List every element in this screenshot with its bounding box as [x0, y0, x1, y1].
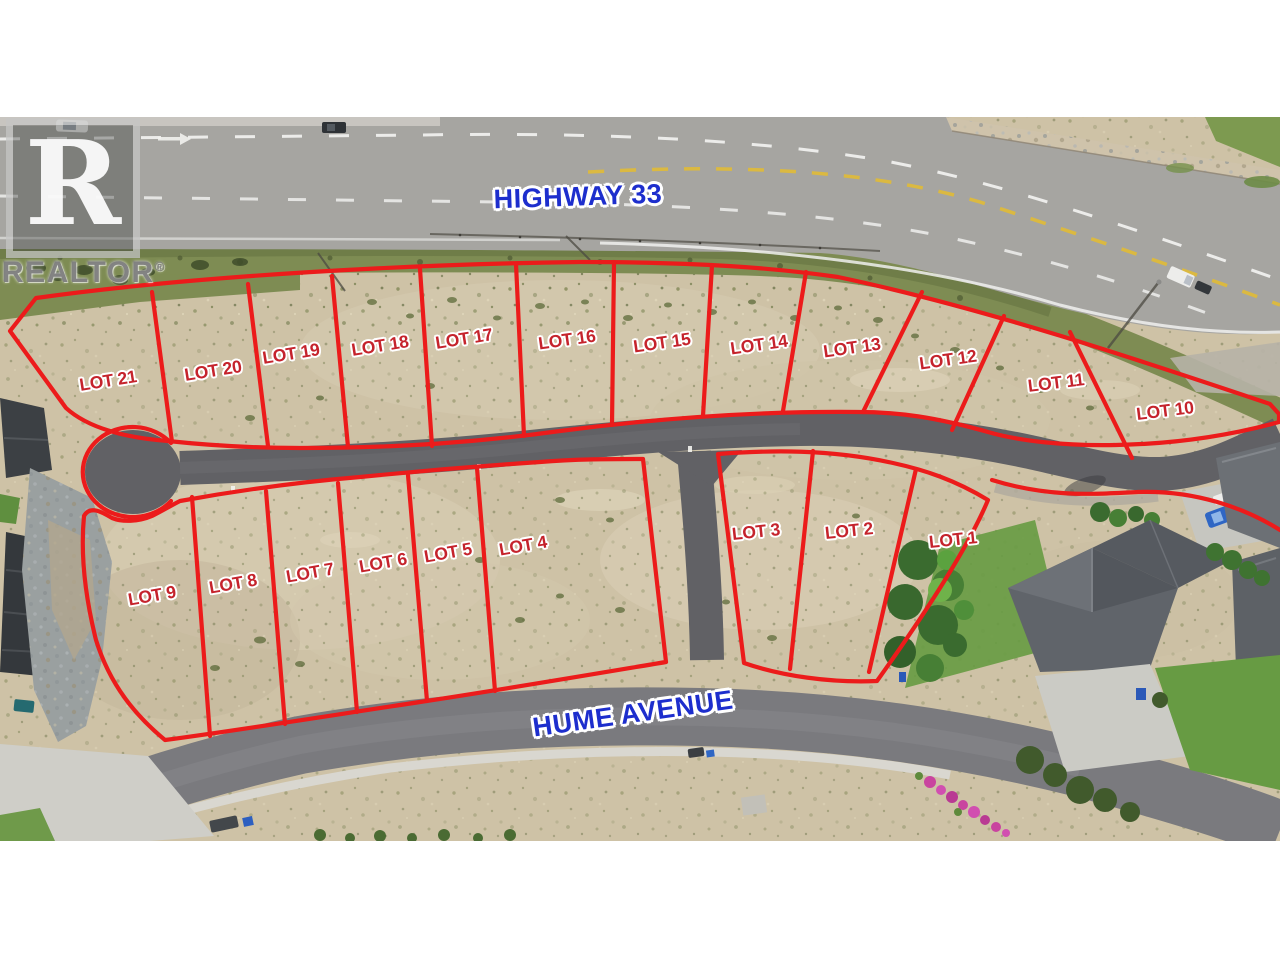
car-white [56, 119, 88, 132]
blue-bin [1136, 688, 1146, 700]
aerial-lot-map: HIGHWAY 33 HUME AVENUE LOT 21LOT 20LOT 1… [0, 0, 1280, 960]
blue-bin [899, 672, 906, 682]
utility-pole [1157, 280, 1162, 285]
aerial-photo [0, 0, 1280, 960]
utility-pad [741, 794, 767, 815]
car-dark [322, 122, 346, 133]
car-teal [13, 699, 34, 713]
connector-road [694, 452, 707, 660]
